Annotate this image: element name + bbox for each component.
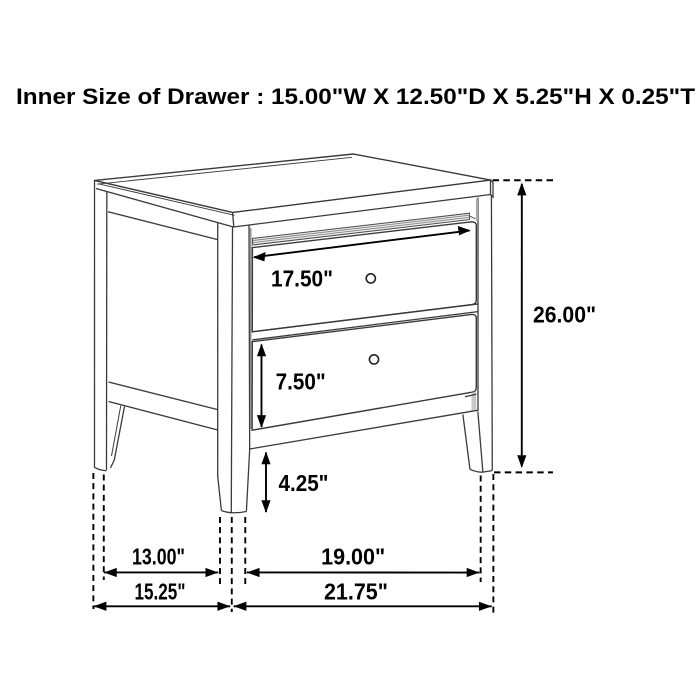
svg-text:21.75": 21.75" [324,578,388,604]
svg-text:17.50": 17.50" [271,265,333,291]
svg-text:13.00": 13.00" [132,543,185,569]
svg-text:15.25": 15.25" [134,578,185,604]
svg-text:19.00": 19.00" [321,543,385,569]
svg-text:4.25": 4.25" [278,470,328,496]
svg-text:26.00": 26.00" [533,302,596,328]
svg-text:Inner Size of Drawer : 15.00"W: Inner Size of Drawer : 15.00"W X 12.50"D… [16,84,696,109]
svg-text:7.50": 7.50" [276,368,326,394]
